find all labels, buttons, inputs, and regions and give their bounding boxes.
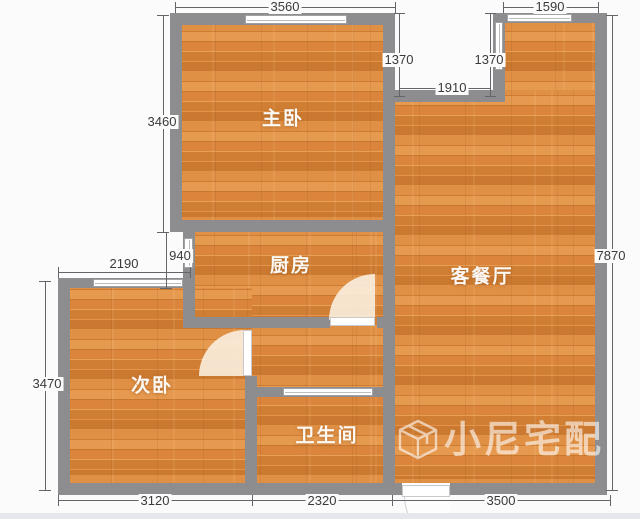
tick: [58, 267, 59, 278]
tick: [395, 2, 396, 13]
bottom-wall-right: [450, 483, 607, 495]
master-bottom-wall: [170, 220, 395, 232]
tick: [485, 96, 496, 97]
tick: [394, 13, 405, 14]
dim-master-top: 3560: [269, 0, 302, 14]
tick: [252, 495, 253, 506]
bottom-wall-left: [58, 483, 402, 495]
room-label-kitchen: 厨房: [270, 251, 312, 278]
second-door-leaf: [243, 330, 252, 376]
room-label-living: 客餐厅: [450, 262, 513, 289]
second-window: [93, 279, 183, 287]
entry-door-leaf: [402, 485, 450, 497]
dim-second-top: 2190: [108, 257, 141, 271]
center-spine-wall: [383, 13, 395, 483]
tick: [598, 2, 599, 13]
tick: [606, 490, 618, 491]
tick: [399, 83, 400, 94]
dim-second-left: 3470: [31, 377, 64, 391]
kitchen-bottom-wall-left: [183, 317, 330, 328]
floor-plan: 3560 1590 1370 1370 1910 3460 940 2190 3…: [0, 0, 640, 519]
tick: [39, 490, 51, 491]
dim-master-left: 3460: [146, 115, 179, 129]
tick: [175, 2, 176, 13]
dim-notch-width: 1910: [436, 81, 469, 95]
tick: [485, 13, 496, 14]
tick: [157, 15, 169, 16]
bath-opening: [283, 388, 373, 396]
kitchen-bottom-wall-right: [377, 317, 395, 328]
kitchen-door-leaf: [330, 317, 375, 326]
dim-notch-left: 1370: [383, 53, 416, 67]
room-label-master: 主卧: [262, 104, 304, 131]
watermark-cube-icon: [396, 419, 440, 461]
living-top-window: [507, 14, 572, 22]
kitchen-left-wall: [183, 220, 195, 328]
tick: [160, 288, 172, 289]
watermark: 小尼宅配: [396, 418, 604, 462]
tick: [606, 15, 618, 16]
tick: [157, 232, 169, 233]
dim-kitchen-offset: 940: [167, 249, 193, 263]
tick: [610, 495, 611, 506]
dim-living-top: 1590: [534, 0, 567, 14]
tick: [503, 2, 504, 13]
watermark-text: 小尼宅配: [444, 418, 604, 462]
dim-bottom-right: 3500: [485, 494, 518, 508]
tick: [394, 96, 405, 97]
tick: [490, 83, 491, 94]
tick: [392, 495, 393, 506]
dim-bottom-left: 3120: [139, 494, 172, 508]
tick: [190, 267, 191, 278]
dim-line-2190: [58, 272, 190, 273]
dim-bottom-mid: 2320: [306, 494, 339, 508]
room-label-bathroom: 卫生间: [295, 421, 358, 448]
room-label-second: 次卧: [131, 371, 173, 398]
tick: [39, 281, 51, 282]
master-window: [245, 15, 347, 24]
footer-strip: [0, 513, 640, 519]
dim-notch-right: 1370: [473, 53, 506, 67]
dim-living-right: 7870: [595, 249, 628, 263]
tick: [58, 495, 59, 506]
